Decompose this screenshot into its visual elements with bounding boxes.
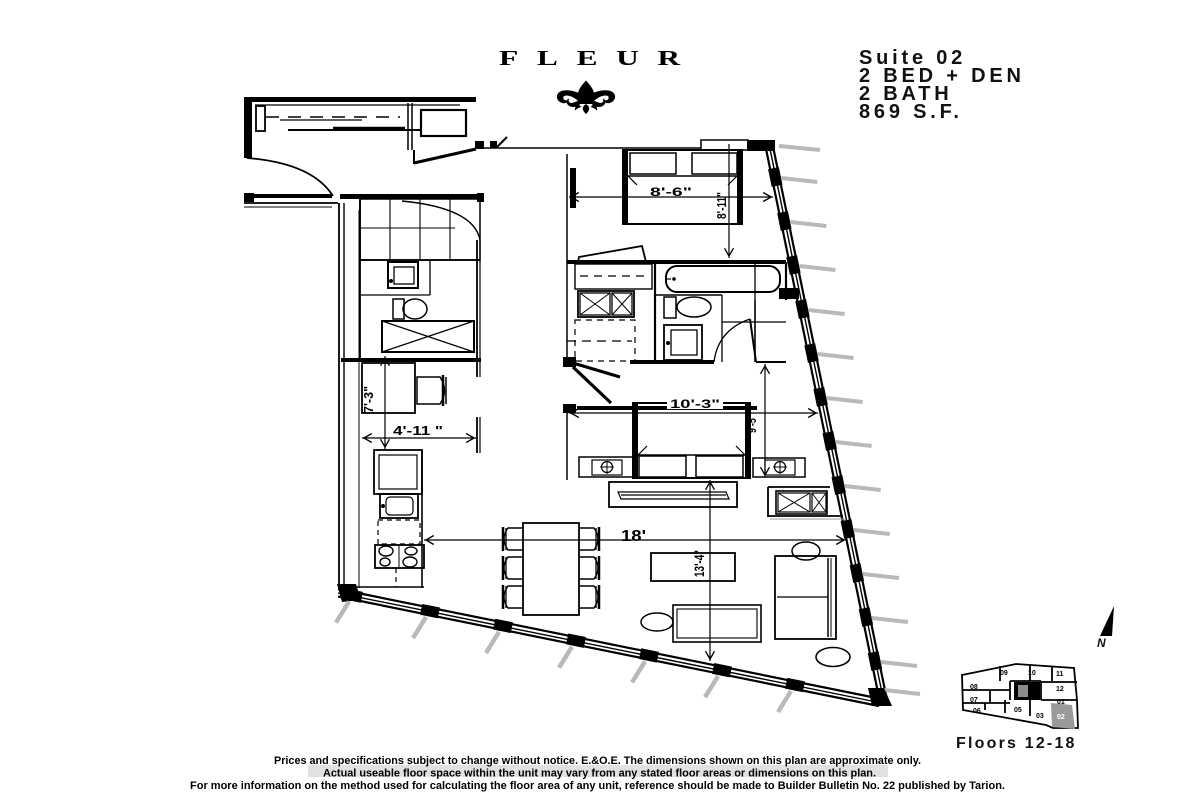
- svg-text:13'-4": 13'-4": [692, 550, 707, 577]
- svg-text:9'-5": 9'-5": [745, 414, 759, 433]
- svg-text:869 S.F.: 869 S.F.: [859, 101, 963, 123]
- svg-text:10: 10: [1028, 670, 1036, 677]
- svg-text:8'-11": 8'-11": [714, 192, 729, 219]
- svg-text:05: 05: [1014, 707, 1022, 714]
- svg-text:12: 12: [1056, 686, 1064, 693]
- svg-text:18': 18': [621, 528, 646, 545]
- svg-text:7'-3": 7'-3": [362, 386, 376, 413]
- svg-text:11: 11: [1056, 671, 1064, 678]
- svg-text:09: 09: [1000, 670, 1008, 677]
- svg-text:07: 07: [970, 697, 978, 704]
- svg-text:For more information on the me: For more information on the method used …: [190, 780, 1005, 792]
- svg-text:08: 08: [970, 684, 978, 691]
- svg-text:Floors 12-18: Floors 12-18: [956, 735, 1077, 752]
- svg-text:03: 03: [1036, 713, 1044, 720]
- svg-text:N: N: [1097, 636, 1106, 650]
- svg-text:8'-6": 8'-6": [650, 187, 692, 199]
- svg-text:Actual useable floor space wit: Actual useable floor space within the un…: [323, 768, 876, 780]
- svg-text:Prices and specifications subj: Prices and specifications subject to cha…: [274, 755, 921, 767]
- svg-text:FLEUR: FLEUR: [499, 46, 699, 70]
- svg-text:02: 02: [1057, 714, 1065, 721]
- svg-text:06: 06: [973, 708, 981, 715]
- svg-text:4'-11 ": 4'-11 ": [393, 423, 443, 438]
- svg-text:10'-3": 10'-3": [670, 399, 720, 411]
- svg-text:01: 01: [1057, 699, 1065, 706]
